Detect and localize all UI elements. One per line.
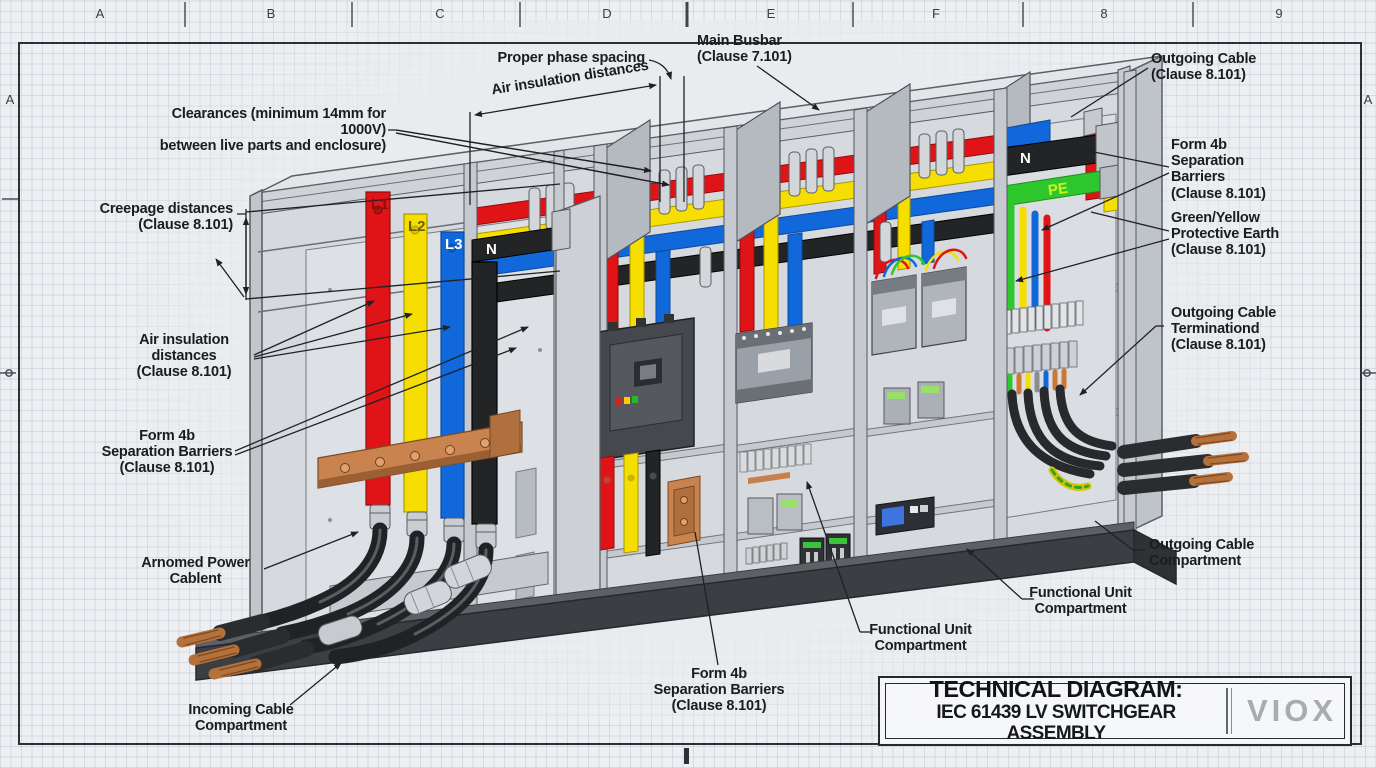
title-separator-thin xyxy=(1231,688,1232,734)
ruler-ref-e-top: E xyxy=(761,6,781,21)
ruler-ref-a-right: A xyxy=(1361,92,1375,107)
busbar-label-pe: PE xyxy=(1047,180,1069,200)
ruler-ref-a-top: A xyxy=(90,6,110,21)
label-green-yellow-pe: Green/Yellow Protective Earth (Clause 8.… xyxy=(1171,210,1306,259)
drawing-sheet: A B C D E F 8 9 A A Proper phase spacing… xyxy=(0,0,1376,768)
viox-logo: VIOX xyxy=(1240,693,1344,729)
mccb-breaker xyxy=(598,314,694,460)
label-form4b-barriers-bottom: Form 4b Separation Barriers (Clause 8.10… xyxy=(644,666,794,715)
label-form4b-barriers-left: Form 4b Separation Barriers (Clause 8.10… xyxy=(92,428,242,477)
title-separator xyxy=(1226,688,1228,734)
ruler-ref-c-top: C xyxy=(430,6,450,21)
ruler-ref-d-top: D xyxy=(597,6,617,21)
ruler-ref-a-left: A xyxy=(3,92,17,107)
label-clearances: Clearances (minimum 14mm for 1000V) betw… xyxy=(134,106,386,155)
label-functional-unit-right: Functional Unit Compartment xyxy=(1018,585,1143,617)
ruler-ref-f-top: F xyxy=(926,6,946,21)
title-block-inner: TECHNICAL DIAGRAM: IEC 61439 LV SWITCHGE… xyxy=(885,683,1345,739)
busbar-label-n-outgoing: N xyxy=(1020,150,1031,167)
title-block: TECHNICAL DIAGRAM: IEC 61439 LV SWITCHGE… xyxy=(878,676,1352,746)
drawing-title: TECHNICAL DIAGRAM: xyxy=(890,677,1222,702)
label-main-busbar: Main Busbar (Clause 7.101) xyxy=(697,33,817,65)
outgoing-section xyxy=(1002,66,1130,530)
label-creepage-distances: Creepage distances (Clause 8.101) xyxy=(95,201,233,233)
label-outgoing-compartment: Outgoing Cable Compartment xyxy=(1149,537,1279,569)
label-form4b-barriers-right: Form 4b Separation Barriers (Clause 8.10… xyxy=(1171,137,1286,202)
ruler-ref-b-top: B xyxy=(261,6,281,21)
label-armored-power-cable: Arnomed Power Cablent xyxy=(128,555,263,587)
drawing-subtitle: IEC 61439 LV SWITCHGEAR ASSEMBLY xyxy=(890,702,1222,746)
label-outgoing-cable-top: Outgoing Cable (Clause 8.101) xyxy=(1151,51,1281,83)
busbar-label-l3: L3 xyxy=(445,236,463,253)
ruler-ref-9-top: 9 xyxy=(1269,6,1289,21)
ruler-ref-8-top: 8 xyxy=(1094,6,1114,21)
busbar-label-l2: L2 xyxy=(408,218,426,235)
busbar-label-n-incoming: N xyxy=(486,241,497,258)
label-incoming-compartment: Incoming Cable Compartment xyxy=(176,702,306,734)
label-functional-unit-center: Functional Unit Compartment xyxy=(858,622,983,654)
contactor-bay3 xyxy=(736,323,812,403)
label-air-insulation-left: Air insulation distances (Clause 8.101) xyxy=(118,332,250,381)
busbar-label-l1: L1 xyxy=(371,196,389,213)
label-outgoing-termination: Outgoing Cable Terminationd (Clause 8.10… xyxy=(1171,305,1296,354)
